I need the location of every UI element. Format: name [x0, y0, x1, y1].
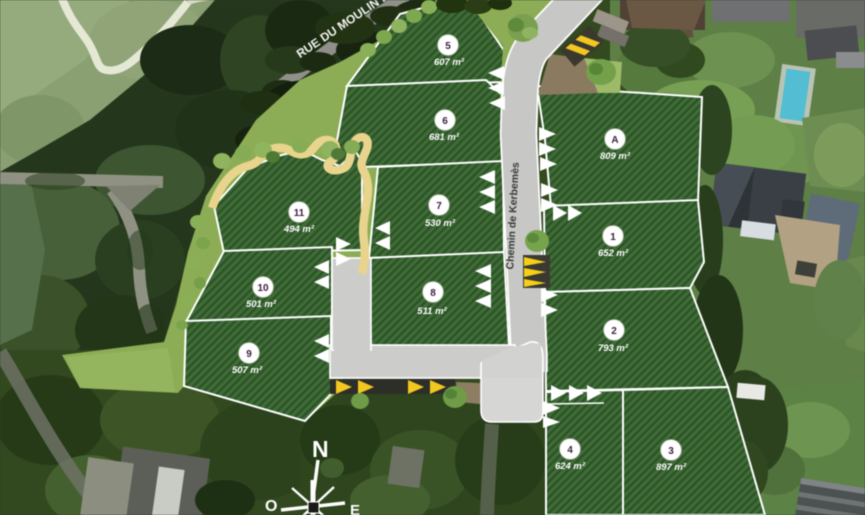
svg-text:5: 5 — [445, 41, 451, 52]
svg-text:O: O — [265, 498, 277, 515]
svg-text:7: 7 — [436, 201, 442, 212]
svg-text:652 m²: 652 m² — [598, 248, 629, 259]
svg-text:6: 6 — [442, 116, 448, 127]
svg-text:624 m²: 624 m² — [555, 461, 586, 472]
svg-text:494 m²: 494 m² — [283, 224, 315, 235]
svg-text:507 m²: 507 m² — [232, 365, 263, 376]
svg-text:681 m²: 681 m² — [429, 132, 460, 143]
svg-text:1: 1 — [610, 232, 616, 243]
svg-text:530 m²: 530 m² — [425, 218, 456, 229]
svg-text:511 m²: 511 m² — [417, 306, 447, 317]
svg-text:607 m²: 607 m² — [434, 57, 465, 68]
svg-text:501 m²: 501 m² — [246, 299, 277, 310]
svg-text:4: 4 — [567, 445, 573, 456]
svg-text:897 m²: 897 m² — [656, 462, 687, 473]
svg-text:9: 9 — [246, 349, 252, 360]
svg-text:E: E — [350, 502, 360, 515]
svg-text:2: 2 — [611, 326, 617, 337]
svg-text:793 m²: 793 m² — [598, 343, 629, 354]
svg-text:N: N — [312, 436, 329, 462]
svg-text:8: 8 — [430, 288, 436, 299]
svg-text:11: 11 — [294, 208, 305, 219]
svg-text:809 m²: 809 m² — [600, 151, 631, 162]
svg-text:10: 10 — [257, 283, 269, 294]
svg-text:A: A — [611, 135, 618, 146]
svg-text:3: 3 — [668, 446, 674, 457]
